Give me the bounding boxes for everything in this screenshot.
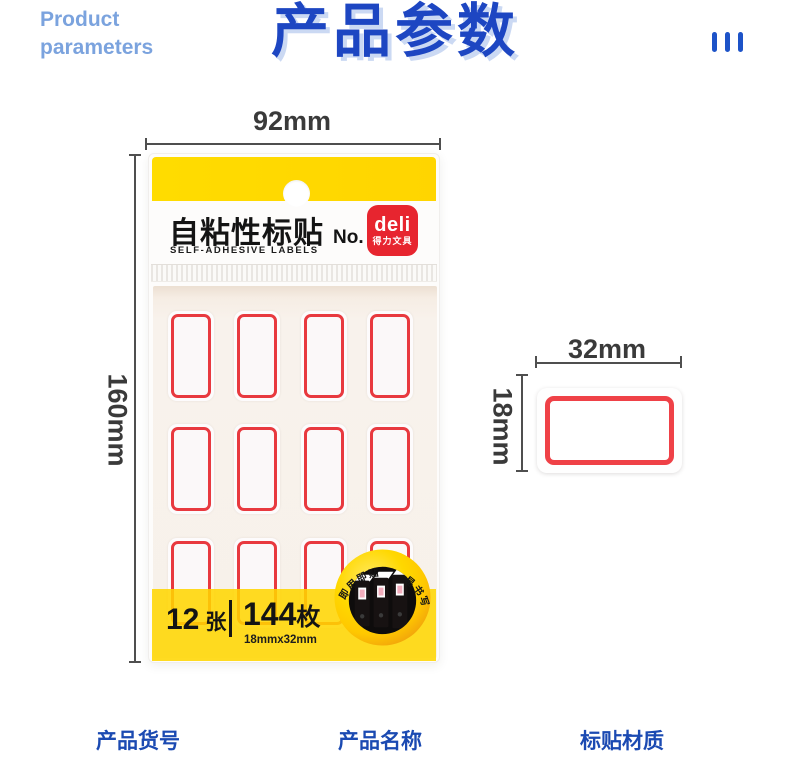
label-sticker: [301, 424, 347, 514]
width-dimension-line: [146, 143, 441, 145]
width-dimension-label: 92mm: [253, 106, 331, 137]
label-sticker-border: [237, 427, 277, 511]
label-sticker-border: [304, 314, 344, 398]
label-height-label: 18mm: [487, 388, 518, 462]
menu-bars-icon: [712, 32, 746, 53]
label-width-line: [535, 362, 682, 364]
footer-item-label-material: 标贴材质: [580, 725, 664, 755]
sheets-group: 12张: [166, 603, 226, 637]
sheets-unit: 张: [205, 611, 226, 634]
height-dimension-label: 160mm: [102, 374, 133, 448]
label-width-label: 32mm: [568, 334, 646, 365]
pieces-group: 144枚: [243, 596, 320, 633]
header-eyebrow: Product parameters: [40, 6, 153, 63]
label-sticker: [367, 424, 413, 514]
label-sticker-border: [237, 314, 277, 398]
footer-item-product-name: 产品名称: [338, 725, 422, 755]
label-sticker-border: [304, 427, 344, 511]
pieces-unit: 枚: [296, 604, 320, 631]
label-size: 18mmx32mm: [244, 634, 317, 646]
label-sticker: [234, 311, 280, 401]
label-sticker: [367, 311, 413, 401]
band-divider: [229, 600, 232, 637]
label-sticker-border: [370, 427, 410, 511]
pieces-count: 144: [243, 596, 296, 632]
footer-item-product-code: 产品货号: [96, 725, 180, 755]
height-dimension-line: [134, 155, 136, 663]
width-dim-tick-right: [439, 138, 441, 150]
label-height-tick-bottom: [516, 470, 528, 472]
label-height-tick-top: [516, 374, 528, 376]
sheets-count: 12: [166, 603, 199, 636]
label-sticker: [301, 311, 347, 401]
page: Product parameters 产品参数 92mm 160mm 自粘性标贴…: [0, 0, 790, 766]
label-sticker-border: [370, 314, 410, 398]
feature-badge: 即用即贴 易书写: [333, 548, 432, 647]
page-title: 产品参数: [271, 0, 519, 68]
label-sticker: [234, 424, 280, 514]
single-label-border: [545, 396, 674, 465]
label-width-tick-right: [680, 356, 682, 368]
label-height-line: [521, 374, 523, 472]
header-eyebrow-line1: Product: [40, 6, 153, 34]
package-image: 自粘性标贴 No. 7184 SELF-ADHESIVE LABELS deli…: [148, 153, 440, 663]
label-sticker-border: [171, 427, 211, 511]
label-width-tick-left: [535, 356, 537, 368]
single-label: [537, 388, 682, 473]
label-sticker-border: [171, 314, 211, 398]
height-dim-tick-top: [129, 154, 141, 156]
label-sticker: [168, 424, 214, 514]
width-dim-tick-left: [145, 138, 147, 150]
header-eyebrow-line2: parameters: [40, 34, 153, 62]
height-dim-tick-bottom: [129, 661, 141, 663]
label-sticker: [168, 311, 214, 401]
